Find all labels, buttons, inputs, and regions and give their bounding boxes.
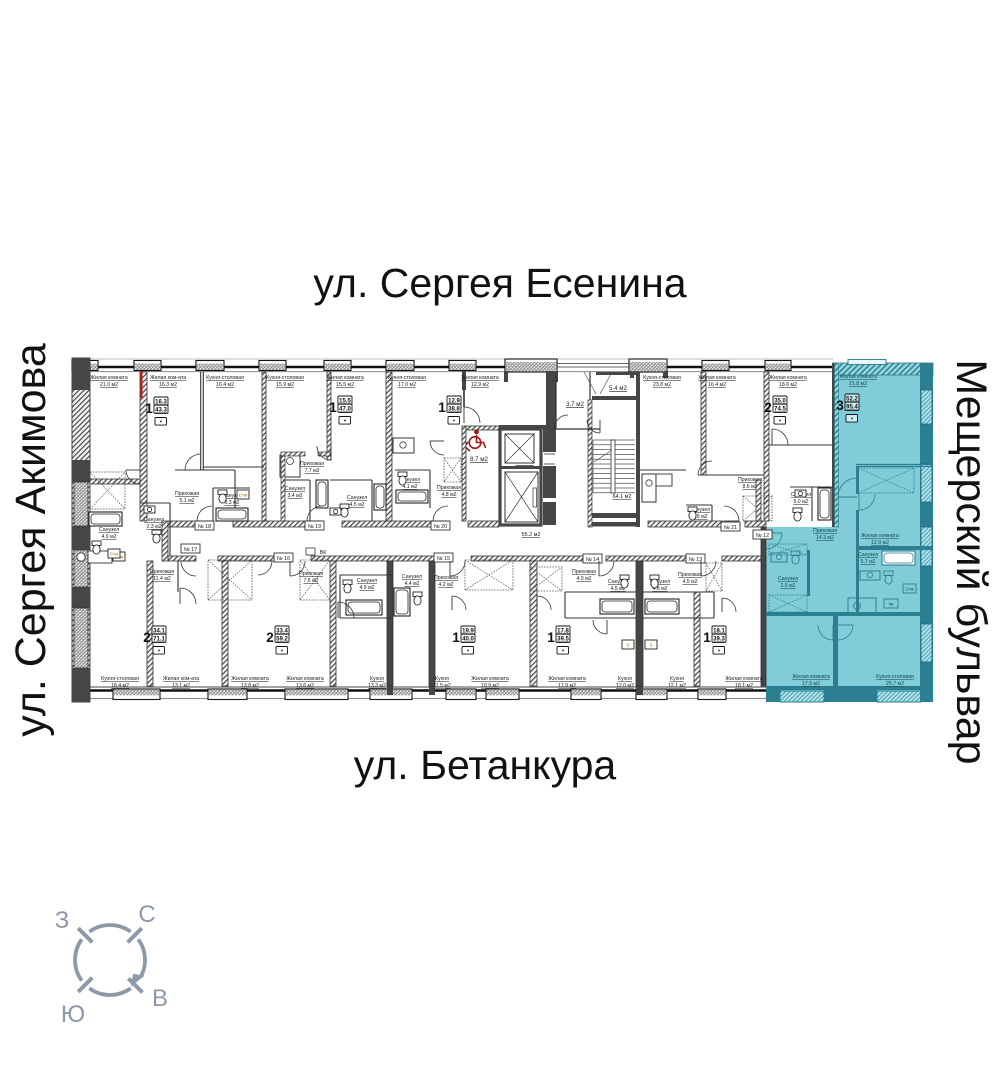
svg-text:8.6 м2: 8.6 м2 — [742, 484, 757, 490]
svg-text:4.5 м2: 4.5 м2 — [349, 502, 364, 508]
svg-text:Санузел: Санузел — [144, 517, 164, 523]
svg-text:№ 14: № 14 — [586, 557, 599, 563]
svg-text:С: С — [138, 901, 155, 928]
svg-text:№ 15: № 15 — [437, 556, 450, 562]
svg-text:Кухня: Кухня — [618, 676, 632, 682]
svg-text:Прихожая: Прихожая — [299, 571, 323, 577]
svg-text:Жилая комната: Жилая комната — [461, 375, 499, 381]
svg-text:71.1: 71.1 — [153, 637, 165, 643]
svg-text:3.3 м2: 3.3 м2 — [224, 500, 239, 506]
svg-text:Жилая комната: Жилая комната — [471, 676, 509, 682]
svg-text:4.5 м2: 4.5 м2 — [682, 579, 697, 585]
svg-text:1: 1 — [438, 400, 446, 415]
svg-text:17.9 м2: 17.9 м2 — [558, 683, 576, 689]
svg-text:Жилая комната: Жилая комната — [861, 533, 899, 539]
svg-text:23.8 м2: 23.8 м2 — [653, 382, 671, 388]
svg-text:№ 18: № 18 — [198, 524, 211, 530]
svg-text:Кухня-столовая: Кухня-столовая — [643, 375, 681, 381]
svg-text:35.0: 35.0 — [774, 398, 786, 404]
svg-text:Стм: Стм — [110, 552, 118, 557]
svg-text:52.2: 52.2 — [846, 396, 858, 402]
svg-text:Санузел: Санузел — [858, 552, 878, 558]
svg-text:15.5 м2: 15.5 м2 — [336, 382, 354, 388]
svg-text:18.6 м2: 18.6 м2 — [779, 382, 797, 388]
svg-text:Санузел: Санузел — [99, 527, 119, 533]
svg-text:Прихожая: Прихожая — [175, 491, 199, 497]
svg-text:Жилая комната: Жилая комната — [231, 676, 269, 682]
svg-text:Жилая комната: Жилая комната — [725, 676, 763, 682]
svg-text:21.8 м2: 21.8 м2 — [849, 381, 867, 387]
svg-text:Стм: Стм — [906, 587, 914, 592]
svg-text:Прихожая: Прихожая — [813, 528, 837, 534]
svg-text:38.8: 38.8 — [448, 407, 460, 413]
svg-text:11.4 м2: 11.4 м2 — [153, 576, 171, 582]
svg-text:ул. Бетанкура: ул. Бетанкура — [354, 742, 617, 788]
svg-text:4.2 м2: 4.2 м2 — [438, 582, 453, 588]
svg-text:Кухня-столовая: Кухня-столовая — [206, 375, 244, 381]
svg-text:5.4 м2: 5.4 м2 — [609, 385, 628, 392]
svg-text:8.7 м2: 8.7 м2 — [470, 456, 489, 463]
svg-text:1: 1 — [145, 401, 153, 416]
svg-text:Кухня-столовая: Кухня-столовая — [876, 674, 914, 680]
svg-text:18.1 м2: 18.1 м2 — [735, 683, 753, 689]
svg-text:2: 2 — [266, 630, 274, 645]
svg-text:Санузел: Санузел — [402, 574, 422, 580]
svg-text:13.1 м2: 13.1 м2 — [172, 683, 190, 689]
svg-text:Кухня-столовая: Кухня-столовая — [388, 375, 426, 381]
svg-text:№ 21: № 21 — [724, 525, 737, 531]
svg-text:7.7 м2: 7.7 м2 — [304, 468, 319, 474]
svg-text:3: 3 — [836, 398, 844, 413]
svg-text:Кухня: Кухня — [370, 676, 384, 682]
svg-text:Кухня-столовая: Кухня-столовая — [266, 375, 304, 381]
svg-text:13.8 м2: 13.8 м2 — [241, 683, 259, 689]
svg-text:40.0: 40.0 — [462, 637, 474, 643]
svg-text:4.1 м2: 4.1 м2 — [402, 484, 417, 490]
svg-text:4.8 м2: 4.8 м2 — [441, 492, 456, 498]
svg-text:Жилая комната: Жилая комната — [286, 676, 324, 682]
svg-text:№ 12: № 12 — [756, 533, 769, 539]
svg-text:3.7 м2: 3.7 м2 — [566, 401, 585, 408]
svg-text:Санузел: Санузел — [778, 576, 798, 582]
svg-text:№ 13: № 13 — [689, 557, 702, 563]
svg-text:№ 17: № 17 — [184, 547, 197, 553]
svg-text:12.1 м2: 12.1 м2 — [668, 683, 686, 689]
svg-text:15.9 м2: 15.9 м2 — [276, 382, 294, 388]
svg-text:16.3: 16.3 — [155, 399, 167, 405]
svg-text:Прихожая: Прихожая — [572, 569, 596, 575]
svg-text:2.3 м2: 2.3 м2 — [146, 524, 161, 530]
svg-text:16.4 м2: 16.4 м2 — [708, 382, 726, 388]
svg-text:4.9 м2: 4.9 м2 — [101, 534, 116, 540]
svg-text:S: S — [650, 643, 653, 648]
svg-text:74.5: 74.5 — [774, 407, 786, 413]
svg-text:47.0: 47.0 — [339, 407, 351, 413]
svg-text:16.3 м2: 16.3 м2 — [159, 382, 177, 388]
svg-text:Жилая комната: Жилая комната — [769, 375, 807, 381]
svg-text:Кухня: Кухня — [670, 676, 684, 682]
svg-text:Прихожая: Прихожая — [434, 575, 458, 581]
svg-text:4.4 м2: 4.4 м2 — [404, 581, 419, 587]
svg-text:59.2: 59.2 — [276, 637, 288, 643]
svg-text:55.2 м2: 55.2 м2 — [522, 532, 541, 538]
svg-text:Прихожая: Прихожая — [150, 569, 174, 575]
svg-text:39.5: 39.5 — [557, 637, 569, 643]
svg-text:Жилая комната: Жилая комната — [548, 676, 586, 682]
svg-text:Жилая комната: Жилая комната — [326, 375, 364, 381]
svg-text:Прихожая: Прихожая — [437, 485, 461, 491]
svg-text:Санузел: Санузел — [357, 578, 377, 584]
svg-text:Кухня-столовая: Кухня-столовая — [101, 676, 139, 682]
svg-text:4.9 м2: 4.9 м2 — [359, 585, 374, 591]
svg-text:Мещерский бульвар: Мещерский бульвар — [947, 359, 995, 764]
svg-text:2: 2 — [764, 400, 772, 415]
svg-text:64.1 м2: 64.1 м2 — [613, 494, 632, 500]
svg-text:З: З — [55, 907, 70, 934]
svg-text:Жилая комната: Жилая комната — [90, 375, 128, 381]
svg-text:5.0 м2: 5.0 м2 — [793, 499, 808, 505]
svg-text:S: S — [627, 643, 630, 648]
svg-text:Санузел: Санузел — [347, 495, 367, 501]
svg-text:1: 1 — [329, 400, 337, 415]
svg-text:18.4 м2: 18.4 м2 — [111, 683, 129, 689]
svg-text:Жилая ком-ата: Жилая ком-ата — [150, 375, 186, 381]
svg-text:№ 19: № 19 — [308, 524, 321, 530]
svg-text:18.1: 18.1 — [713, 628, 725, 634]
svg-text:17.8: 17.8 — [557, 628, 569, 634]
svg-text:ВК: ВК — [320, 550, 326, 556]
svg-text:ул. Сергея Есенина: ул. Сергея Есенина — [313, 260, 686, 306]
svg-text:2.5 м2: 2.5 м2 — [780, 583, 795, 589]
svg-text:12.0 м2: 12.0 м2 — [616, 683, 634, 689]
svg-text:Жилая ком-ата: Жилая ком-ата — [163, 676, 199, 682]
svg-text:Жилая комната: Жилая комната — [839, 374, 877, 380]
svg-text:В: В — [152, 985, 168, 1012]
svg-text:ул. Сергея Акимова: ул. Сергея Акимова — [7, 343, 55, 737]
svg-text:14.3 м2: 14.3 м2 — [816, 535, 834, 541]
svg-text:19.9: 19.9 — [462, 628, 474, 634]
svg-text:Ю: Ю — [61, 1001, 85, 1028]
svg-text:3.4 м2: 3.4 м2 — [287, 493, 302, 499]
svg-text:25.7 м2: 25.7 м2 — [886, 681, 904, 687]
svg-text:19.9 м2: 19.9 м2 — [481, 683, 499, 689]
svg-text:№ 16: № 16 — [277, 556, 290, 562]
svg-text:Жилая комната: Жилая комната — [698, 375, 736, 381]
svg-text:13.3 м2: 13.3 м2 — [368, 683, 386, 689]
svg-text:12.9 м2: 12.9 м2 — [471, 382, 489, 388]
svg-text:№ 20: № 20 — [434, 524, 447, 530]
svg-text:34.1: 34.1 — [153, 628, 165, 634]
svg-text:1: 1 — [703, 630, 711, 645]
svg-text:17.0 м2: 17.0 м2 — [398, 382, 416, 388]
svg-text:17.5 м2: 17.5 м2 — [802, 681, 820, 687]
svg-text:43.3: 43.3 — [155, 408, 167, 414]
svg-text:11.5 м2: 11.5 м2 — [433, 683, 451, 689]
svg-text:13.6 м2: 13.6 м2 — [296, 683, 314, 689]
svg-text:пв: пв — [889, 602, 894, 607]
svg-text:15.5: 15.5 — [339, 398, 351, 404]
svg-text:Прихожая: Прихожая — [300, 461, 324, 467]
svg-text:12.9 м2: 12.9 м2 — [871, 540, 889, 546]
svg-text:Прихожая: Прихожая — [678, 572, 702, 578]
svg-text:7.6 м2: 7.6 м2 — [303, 578, 318, 584]
svg-text:Стм: Стм — [239, 493, 247, 498]
svg-text:12.9: 12.9 — [448, 398, 460, 404]
svg-text:5.1 м2: 5.1 м2 — [179, 498, 194, 504]
svg-text:16.4 м2: 16.4 м2 — [216, 382, 234, 388]
svg-text:33.4: 33.4 — [276, 628, 288, 634]
svg-text:1: 1 — [547, 630, 555, 645]
svg-text:Кухня: Кухня — [435, 676, 449, 682]
svg-text:2: 2 — [143, 630, 151, 645]
svg-text:95.4: 95.4 — [846, 405, 858, 411]
svg-text:Жилая комната: Жилая комната — [792, 674, 830, 680]
svg-text:Санузел: Санузел — [285, 486, 305, 492]
svg-text:39.3: 39.3 — [713, 637, 725, 643]
svg-text:1: 1 — [452, 630, 460, 645]
svg-text:21.0 м2: 21.0 м2 — [100, 382, 118, 388]
svg-text:5.7 м2: 5.7 м2 — [860, 559, 875, 565]
svg-text:4.0 м2: 4.0 м2 — [576, 576, 591, 582]
